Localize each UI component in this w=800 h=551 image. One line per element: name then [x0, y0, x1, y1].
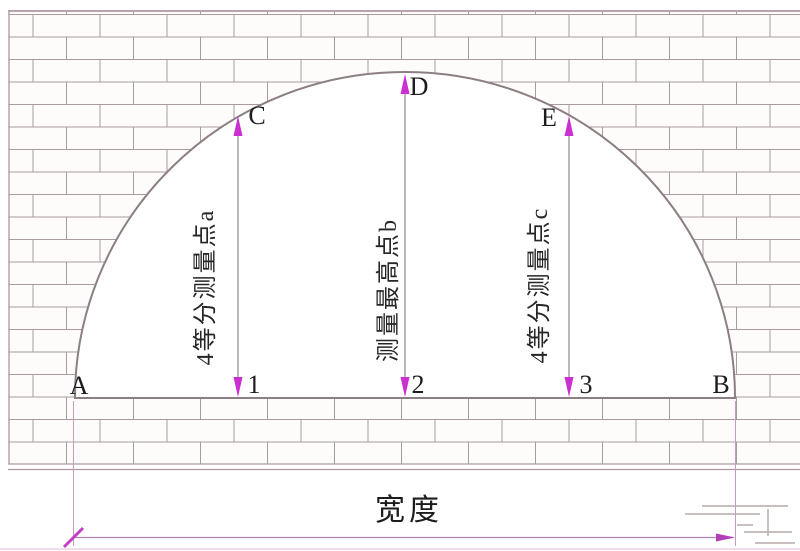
annotation-quarter-point-a: 4等分测量点a: [194, 209, 218, 366]
point-label-d: D: [410, 74, 429, 100]
annotation-highest-point-b: 测量最高点b: [377, 218, 401, 362]
point-label-e: E: [541, 105, 557, 131]
point-label-2: 2: [412, 372, 425, 398]
point-label-c: C: [248, 103, 265, 129]
point-label-b: B: [712, 372, 729, 398]
width-caption: 宽度: [375, 496, 443, 526]
annotation-quarter-point-c: 4等分测量点c: [528, 207, 552, 364]
point-label-3: 3: [580, 372, 593, 398]
dimension-arrowhead: [716, 534, 735, 542]
arch-measurement-diagram: A B C D E 1 2 3 4等分测量点a 测量最高点b 4等分测量点c 宽…: [0, 0, 800, 551]
point-label-a: A: [70, 373, 89, 399]
point-label-1: 1: [248, 372, 261, 398]
